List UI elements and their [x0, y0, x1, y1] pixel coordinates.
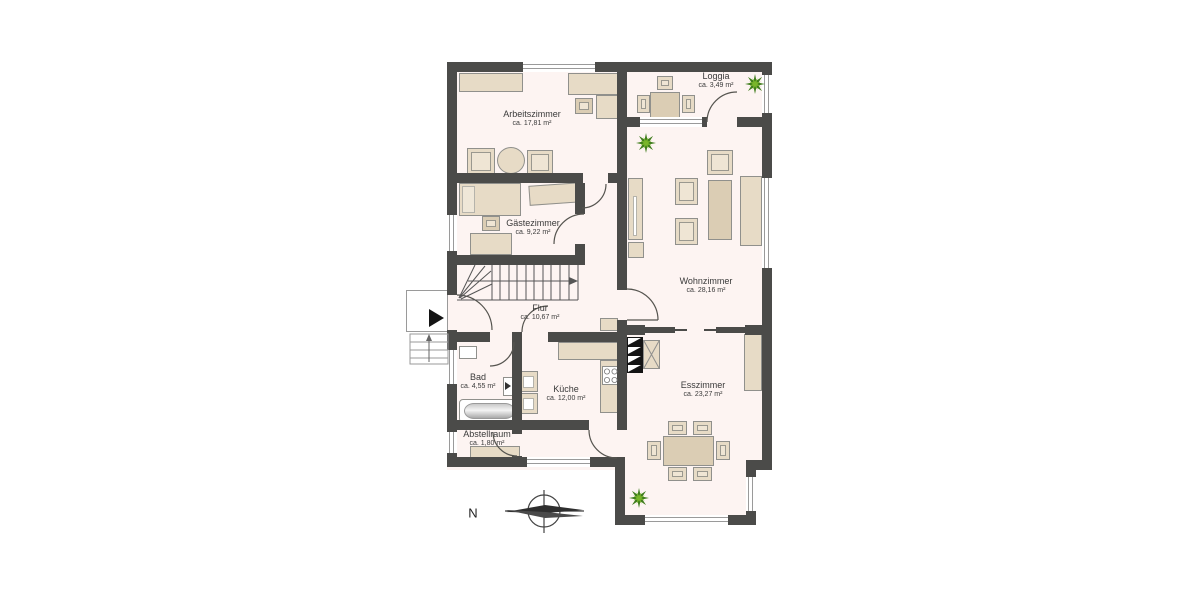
appliance-front — [523, 376, 534, 388]
room-label-flur: Flur ca. 10,67 m² — [521, 303, 560, 323]
window — [762, 75, 772, 113]
room-label-kueche: Küche ca. 12,00 m² — [547, 384, 586, 404]
dining-chair — [668, 467, 687, 481]
kitchen-counter — [558, 342, 620, 360]
room-label-esszimmer: Esszimmer ca. 23,27 m² — [681, 380, 726, 400]
dining-chair — [693, 421, 712, 435]
chimney — [627, 337, 643, 373]
sliding-door-track — [704, 329, 716, 331]
wall-segment — [512, 332, 522, 342]
sideboard — [744, 334, 762, 391]
room-label-bad: Bad ca. 4,55 m² — [460, 372, 495, 392]
wall-segment — [548, 332, 627, 342]
tiled-stove — [643, 340, 660, 369]
room-label-abstellraum: Abstellraum ca. 1,80 m² — [463, 429, 511, 449]
room-area: ca. 28,16 m² — [680, 287, 733, 296]
desk-return — [596, 95, 618, 119]
dining-chair — [668, 421, 687, 435]
window — [640, 117, 702, 127]
compass-needle — [506, 505, 583, 513]
armchair — [675, 218, 698, 245]
sliding-door-panel — [645, 327, 675, 333]
wall-segment — [512, 456, 522, 467]
dining-chair — [647, 441, 661, 460]
armchair — [707, 150, 733, 175]
entrance-steps — [410, 334, 448, 364]
window — [447, 215, 457, 251]
wall-segment — [608, 173, 617, 183]
room-name: Esszimmer — [681, 380, 726, 391]
room-area: ca. 10,67 m² — [521, 314, 560, 323]
compass-needle — [506, 510, 583, 518]
room-area: ca. 3,49 m² — [698, 82, 733, 91]
sideboard — [459, 73, 523, 92]
armchair — [467, 148, 495, 175]
wall-segment — [522, 420, 589, 430]
room-name: Küche — [547, 384, 586, 395]
desk-chair — [482, 216, 500, 231]
dining-table — [663, 436, 714, 466]
wall-segment — [745, 325, 762, 335]
room-label-wohnzimmer: Wohnzimmer ca. 28,16 m² — [680, 276, 733, 296]
room-name: Gästezimmer — [506, 218, 560, 229]
chair — [682, 95, 695, 113]
pillow — [462, 186, 475, 213]
room-area: ca. 23,27 m² — [681, 391, 726, 400]
chair — [657, 76, 673, 90]
compass-north-label: N — [468, 506, 477, 521]
bed — [459, 183, 521, 216]
armchair — [675, 178, 698, 205]
wall-segment — [702, 117, 707, 127]
room-area: ca. 12,00 m² — [547, 395, 586, 404]
window — [645, 515, 728, 525]
wall-segment — [447, 173, 583, 183]
room-name: Wohnzimmer — [680, 276, 733, 287]
window — [527, 457, 590, 467]
wall-segment — [575, 183, 585, 214]
room-label-gaestezimmer: Gästezimmer ca. 9,22 m² — [506, 218, 560, 238]
dining-chair — [716, 441, 730, 460]
tv-slot — [633, 196, 637, 236]
window — [746, 477, 756, 511]
wall-segment — [617, 117, 640, 127]
compass-rose-icon — [505, 490, 584, 533]
coffee-table — [708, 180, 732, 240]
sink — [459, 346, 477, 359]
room-area: ca. 9,22 m² — [506, 229, 560, 238]
room-area: ca. 1,80 m² — [463, 440, 511, 449]
room-area: ca. 17,81 m² — [503, 120, 561, 129]
floorplan: Arbeitszimmer ca. 17,81 m² Loggia ca. 3,… — [0, 0, 1200, 600]
wall-segment — [617, 72, 627, 290]
sliding-door-panel — [716, 327, 746, 333]
room-name: Flur — [521, 303, 560, 314]
room-label-loggia: Loggia ca. 3,49 m² — [698, 71, 733, 91]
room-name: Arbeitszimmer — [503, 109, 561, 120]
room-label-arbeitszimmer: Arbeitszimmer ca. 17,81 m² — [503, 109, 561, 129]
bathtub-basin — [464, 403, 515, 419]
room-name: Loggia — [698, 71, 733, 82]
appliance-front — [523, 398, 534, 410]
window — [523, 62, 595, 72]
wall-segment — [447, 332, 490, 342]
window — [447, 350, 457, 384]
room-area: ca. 4,55 m² — [460, 383, 495, 392]
desk-chair — [575, 98, 593, 114]
window — [447, 432, 457, 453]
wall-unit — [628, 178, 643, 240]
sliding-door-track — [675, 329, 687, 331]
room-name: Bad — [460, 372, 495, 383]
sofa — [740, 176, 762, 246]
steps-up-arrow — [426, 334, 432, 341]
side-table — [497, 147, 525, 174]
hall-cabinet — [600, 318, 618, 331]
wall-segment — [512, 342, 522, 430]
dining-chair — [693, 467, 712, 481]
chair — [637, 95, 650, 113]
cabinet — [628, 242, 644, 258]
wall-segment — [737, 117, 772, 127]
room-name: Abstellraum — [463, 429, 511, 440]
desk — [568, 73, 618, 95]
entrance-porch — [406, 290, 448, 332]
wall-segment — [512, 430, 522, 434]
loggia-table — [650, 92, 680, 120]
window — [762, 178, 772, 268]
wall-segment — [447, 255, 585, 265]
wall-segment — [627, 325, 645, 335]
armchair — [527, 150, 553, 175]
